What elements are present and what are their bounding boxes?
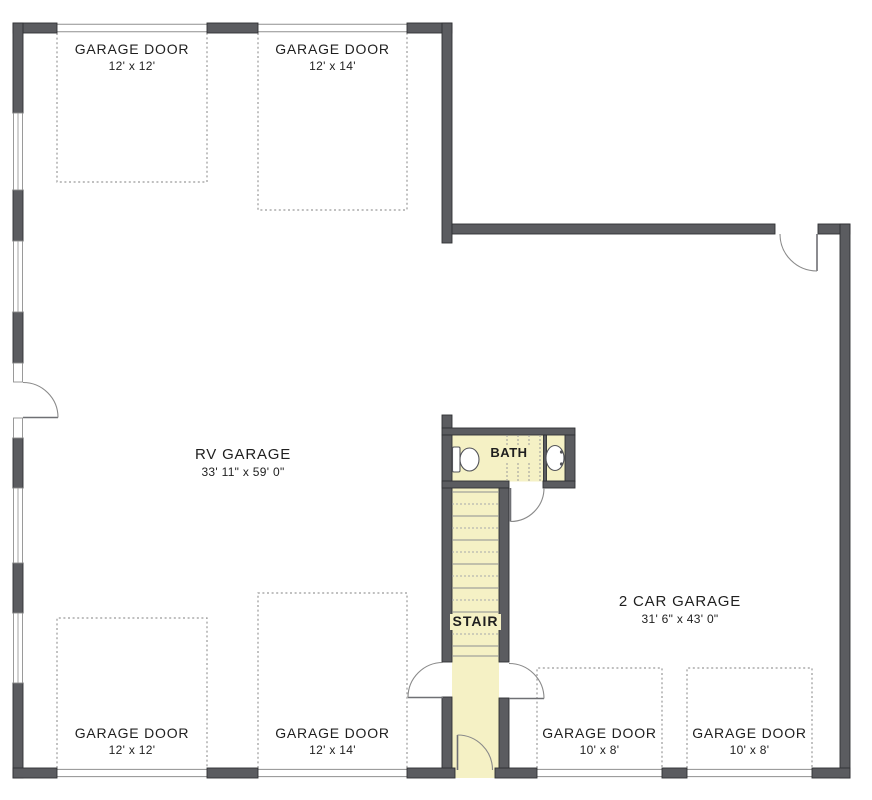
room-dims: 31' 6" x 43' 0" [580,613,780,626]
wall-segment [452,224,775,234]
wall-segment [495,768,537,778]
garage-door-size: 12' x 14' [258,60,407,73]
wall-segment [13,768,57,778]
garage-door-title: GARAGE DOOR [57,42,207,58]
door-swing-arc [780,234,817,271]
door-swing-arc [511,488,545,522]
room-label-2-car-garage: 2 CAR GARAGE 31' 6" x 43' 0" [580,594,780,626]
wall-segment [442,415,452,428]
garage-door-outlines [57,33,812,768]
garage-door-title: GARAGE DOOR [258,726,407,742]
garage-door-title: GARAGE DOOR [258,42,407,58]
garage-door-size: 10' x 8' [687,744,812,757]
sink-faucet-icon [560,450,563,453]
garage-door-label-bottom-center-right: GARAGE DOOR 10' x 8' [537,726,662,757]
wall-segment [13,190,23,241]
garage-door-label-top-left: GARAGE DOOR 12' x 12' [57,42,207,73]
garage-door-size: 12' x 12' [57,744,207,757]
room-label-bath: BATH [482,446,536,461]
window [14,363,23,382]
wall-segment [13,683,23,778]
garage-door-title: GARAGE DOOR [57,726,207,742]
wall-segment [207,768,258,778]
door-swing-arc [509,664,544,699]
garage-door-label-top-right: GARAGE DOOR 12' x 14' [258,42,407,73]
garage-door-title: GARAGE DOOR [537,726,662,742]
garage-door-size: 12' x 12' [57,60,207,73]
window [14,418,23,438]
garage-door-title: GARAGE DOOR [687,726,812,742]
toilet-icon [460,448,479,471]
garage-door-size: 10' x 8' [537,744,662,757]
sink-faucet-icon [560,462,563,465]
wall-segment [840,224,850,778]
floor-plan-drawing [0,0,872,800]
garage-door-label-bottom-center-left: GARAGE DOOR 12' x 14' [258,726,407,757]
door-swing-arc [408,663,443,698]
room-name: 2 CAR GARAGE [580,594,780,611]
toilet-icon [453,447,461,472]
wall-segment [13,438,23,488]
garage-door-label-bottom-right: GARAGE DOOR 10' x 8' [687,726,812,757]
door-swing-arc [23,383,58,418]
wall-segment [407,768,455,778]
wall-segment [812,768,850,778]
stair-right-wall-lower [499,698,509,768]
wall-segment [13,312,23,363]
wall-segment [207,23,258,33]
room-label-rv-garage: RV GARAGE 33' 11" x 59' 0" [143,447,343,479]
bath-bottom-wall [442,481,509,488]
room-name: RV GARAGE [143,447,343,464]
bath-bottom-wall [543,481,575,488]
room-label-stair: STAIR [450,614,501,630]
bath-top-wall [442,428,575,435]
wall-segment [442,23,452,243]
wall-segment [662,768,687,778]
garage-door-size: 12' x 14' [258,744,407,757]
wall-segment [13,23,23,113]
door-swings [23,234,817,770]
stair-left-wall-lower [442,697,452,768]
stair-entry-floor [455,768,495,778]
floor-plan: GARAGE DOOR 12' x 12' GARAGE DOOR 12' x … [0,0,872,800]
stair-right-wall [499,488,509,662]
garage-door-label-bottom-left: GARAGE DOOR 12' x 12' [57,726,207,757]
sink-icon [546,446,564,471]
wall-segment [13,563,23,613]
room-dims: 33' 11" x 59' 0" [143,466,343,479]
bath-right-wall [565,435,575,482]
